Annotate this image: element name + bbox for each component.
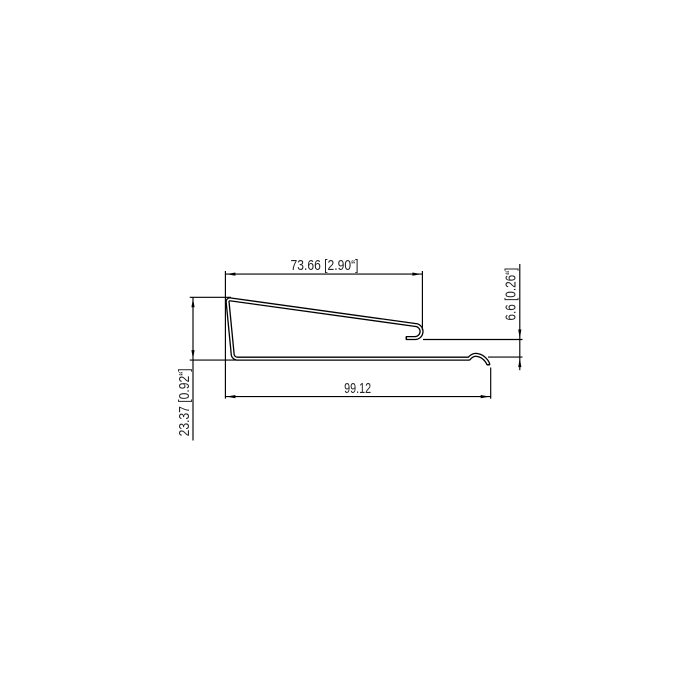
- svg-text:23.37 [0.92“]: 23.37 [0.92“]: [176, 368, 193, 436]
- svg-text:73.66 [2.90“]: 73.66 [2.90“]: [291, 257, 359, 274]
- svg-text:6.6 [0.26“]: 6.6 [0.26“]: [502, 268, 519, 321]
- svg-text:99.12: 99.12: [344, 380, 371, 397]
